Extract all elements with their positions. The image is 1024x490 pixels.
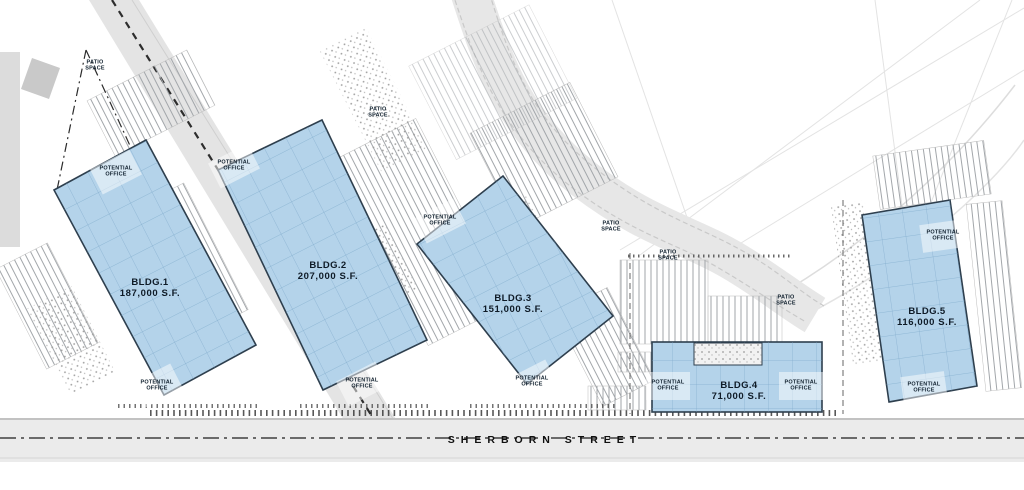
- site-plan: BLDG.1 187,000 S.F. BLDG.2 207,000 S.F. …: [0, 0, 1024, 490]
- sherborn-street-road: [0, 413, 1024, 462]
- building-4-courtyard: [694, 343, 762, 365]
- left-roadway-strip: [0, 52, 20, 247]
- site-plan-drawing: [0, 0, 1024, 490]
